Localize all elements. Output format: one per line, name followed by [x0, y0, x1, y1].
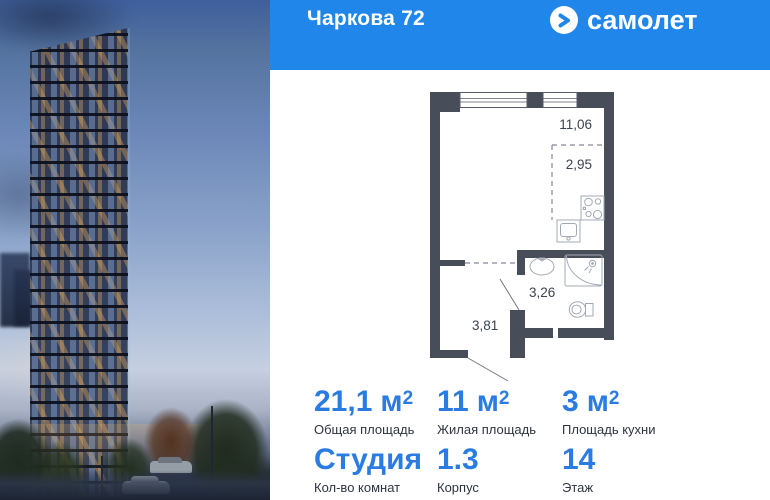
floorplan: 11,06 2,95 3,26 3,81	[425, 90, 620, 390]
stat-label: Этаж	[562, 480, 595, 495]
shower-icon	[565, 255, 602, 286]
stat-label: Корпус	[437, 480, 479, 495]
stat-label: Кол-во комнат	[314, 480, 422, 495]
building-photo	[0, 0, 270, 500]
bathroom-area-label: 3,26	[529, 285, 555, 300]
stove-icon	[581, 196, 604, 220]
stat-label: Жилая площадь	[437, 422, 536, 437]
window	[543, 93, 577, 108]
stat-living-area: 11м2 Жилая площадь	[437, 384, 536, 437]
hallway-area-label: 3,81	[472, 318, 498, 333]
card-header: Чаркова 72 самолет	[270, 0, 770, 70]
toilet-icon	[569, 302, 593, 318]
samolet-logo[interactable]: самолет	[550, 6, 697, 34]
room-area-label: 11,06	[559, 117, 592, 132]
stat-label: Общая площадь	[314, 422, 414, 437]
stat-value: Студия	[314, 445, 422, 475]
window	[460, 93, 527, 108]
stat-value: 14	[562, 445, 595, 475]
stat-building: 1.3 Корпус	[437, 445, 479, 495]
samolet-logo-icon	[550, 6, 578, 34]
stat-value: 1.3	[437, 445, 479, 475]
stat-kitchen-area: 3м2 Площадь кухни	[562, 384, 655, 437]
street-ground	[0, 470, 270, 500]
kitchen-area-label: 2,95	[566, 157, 592, 172]
brand-name: самолет	[587, 6, 697, 34]
listing-card: Чаркова 72 самолет	[270, 0, 770, 500]
stat-label: Площадь кухни	[562, 422, 655, 437]
project-title: Чаркова 72	[307, 7, 425, 31]
kitchen-sink-icon	[557, 220, 580, 242]
trees	[0, 0, 270, 500]
stat-rooms: Студия Кол-во комнат	[314, 445, 422, 495]
stat-value: 3м2	[562, 384, 655, 417]
stat-value: 11м2	[437, 384, 536, 417]
stat-value: 21,1м2	[314, 384, 414, 417]
bath-sink-icon	[530, 258, 554, 275]
stat-floor: 14 Этаж	[562, 445, 595, 495]
stat-total-area: 21,1м2 Общая площадь	[314, 384, 414, 437]
